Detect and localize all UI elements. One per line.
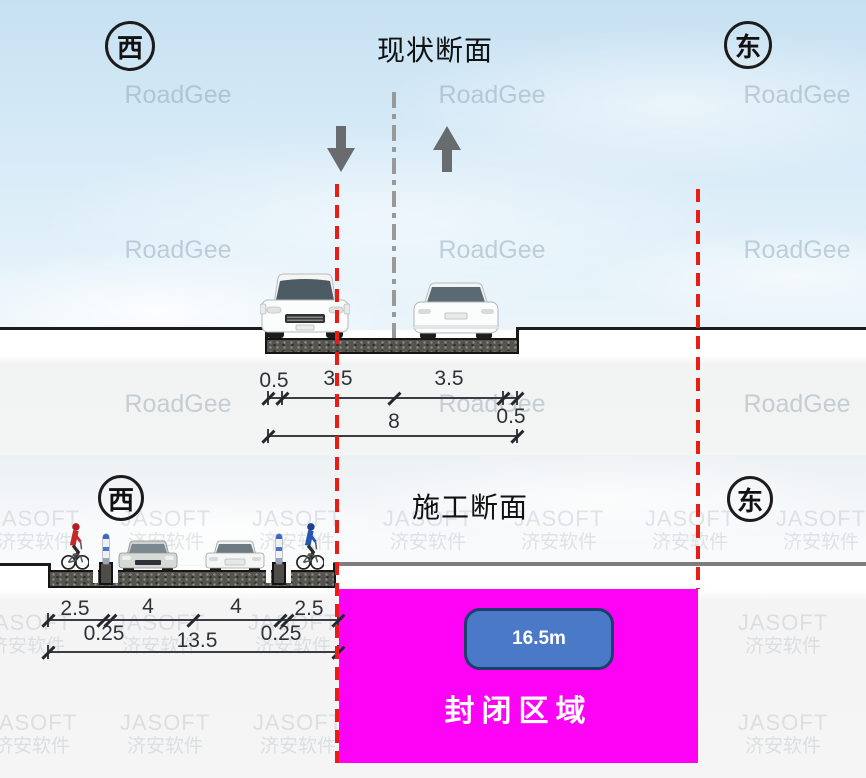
island-gap bbox=[93, 566, 98, 583]
dimension-label: 2.5 bbox=[294, 598, 323, 619]
watermark-jasoft-line1: JASOFT bbox=[723, 710, 843, 736]
watermark-jasoft-line2: 济安软件 bbox=[368, 532, 488, 554]
watermark-jasoft-line2: 济安软件 bbox=[499, 532, 619, 554]
watermark-roadgee: RoadGee bbox=[118, 236, 238, 265]
watermark-jasoft: JASOFT济安软件 bbox=[0, 710, 92, 758]
car-rear-small-icon bbox=[205, 540, 265, 572]
roadbed-asphalt-top bbox=[265, 338, 519, 354]
cyclist-icon bbox=[296, 521, 324, 572]
watermark-roadgee: RoadGee bbox=[432, 390, 552, 419]
dimension-label: 2.5 bbox=[60, 598, 89, 619]
watermark-roadgee: RoadGee bbox=[737, 81, 857, 110]
watermark-roadgee: RoadGee bbox=[432, 236, 552, 265]
east-marker-bottom: 东 bbox=[727, 476, 773, 522]
dimension-label: 0.25 bbox=[84, 623, 125, 644]
closure-boundary-east-line bbox=[696, 189, 700, 589]
east-marker-top: 东 bbox=[724, 21, 772, 69]
ground-line-east-top bbox=[517, 327, 866, 330]
watermark-jasoft-line1: JASOFT bbox=[0, 710, 92, 736]
existing-section-title: 现状断面 bbox=[350, 29, 520, 69]
watermark-roadgee: RoadGee bbox=[737, 236, 857, 265]
dimension-line bbox=[268, 435, 517, 437]
roadbed-asphalt-bottom bbox=[48, 570, 336, 588]
closed-area: 16.5m 封闭区域 bbox=[339, 589, 698, 763]
watermark-jasoft: JASOFT济安软件 bbox=[723, 610, 843, 658]
watermark-jasoft-line1: JASOFT bbox=[761, 506, 866, 532]
watermark-jasoft: JASOFT济安软件 bbox=[761, 506, 866, 554]
separator-island bbox=[99, 562, 113, 585]
dimension-label: 8 bbox=[388, 411, 400, 432]
watermark-jasoft: JASOFT济安软件 bbox=[105, 710, 225, 758]
separator-island bbox=[272, 562, 286, 585]
car-rear-icon bbox=[411, 281, 501, 340]
dimension-label: 4 bbox=[230, 596, 242, 617]
dimension-label: 0.5 bbox=[259, 370, 288, 391]
watermark-roadgee: RoadGee bbox=[432, 81, 552, 110]
construction-section-title: 施工断面 bbox=[385, 486, 555, 526]
west-marker-bottom: 西 bbox=[98, 475, 144, 521]
cyclist-icon bbox=[61, 521, 89, 572]
road-centerline bbox=[392, 92, 396, 338]
watermark-roadgee: RoadGee bbox=[118, 81, 238, 110]
watermark-jasoft-line1: JASOFT bbox=[105, 710, 225, 736]
closed-area-label: 封闭区域 bbox=[339, 686, 698, 730]
car-front-small-icon bbox=[118, 540, 178, 572]
west-marker-top: 西 bbox=[105, 21, 155, 71]
watermark-jasoft-line2: 济安软件 bbox=[723, 636, 843, 658]
bollard-icon bbox=[103, 534, 109, 564]
southbound-arrow-icon bbox=[327, 126, 355, 172]
watermark-jasoft-line2: 济安软件 bbox=[723, 736, 843, 758]
watermark-jasoft-line2: 济安软件 bbox=[105, 736, 225, 758]
dimension-label: 0.25 bbox=[261, 623, 302, 644]
ground-line-east-bottom bbox=[333, 562, 866, 566]
closure-boundary-west-line bbox=[335, 184, 339, 763]
northbound-arrow-icon bbox=[433, 126, 461, 172]
watermark-jasoft: JASOFT济安软件 bbox=[723, 710, 843, 758]
dimension-label: 3.5 bbox=[434, 368, 463, 389]
dimension-label: 13.5 bbox=[177, 630, 218, 651]
bollard-icon bbox=[276, 534, 282, 564]
watermark-roadgee: RoadGee bbox=[118, 390, 238, 419]
cross-section-diagram: RoadGee RoadGee RoadGee RoadGee RoadGee … bbox=[0, 0, 866, 778]
watermark-jasoft-line2: 济安软件 bbox=[761, 532, 866, 554]
ground-line-west-top bbox=[0, 327, 267, 330]
dimension-label: 4 bbox=[142, 596, 154, 617]
closure-width-badge: 16.5m bbox=[464, 608, 614, 670]
island-gap bbox=[266, 566, 271, 583]
watermark-roadgee: RoadGee bbox=[737, 390, 857, 419]
watermark-jasoft-line2: 济安软件 bbox=[0, 736, 92, 758]
watermark-jasoft-line2: 济安软件 bbox=[630, 532, 750, 554]
dimension-label: 0.5 bbox=[496, 406, 525, 427]
ground-line-west-bottom bbox=[0, 563, 50, 566]
island-gap bbox=[286, 566, 291, 583]
watermark-jasoft-line1: JASOFT bbox=[723, 610, 843, 636]
